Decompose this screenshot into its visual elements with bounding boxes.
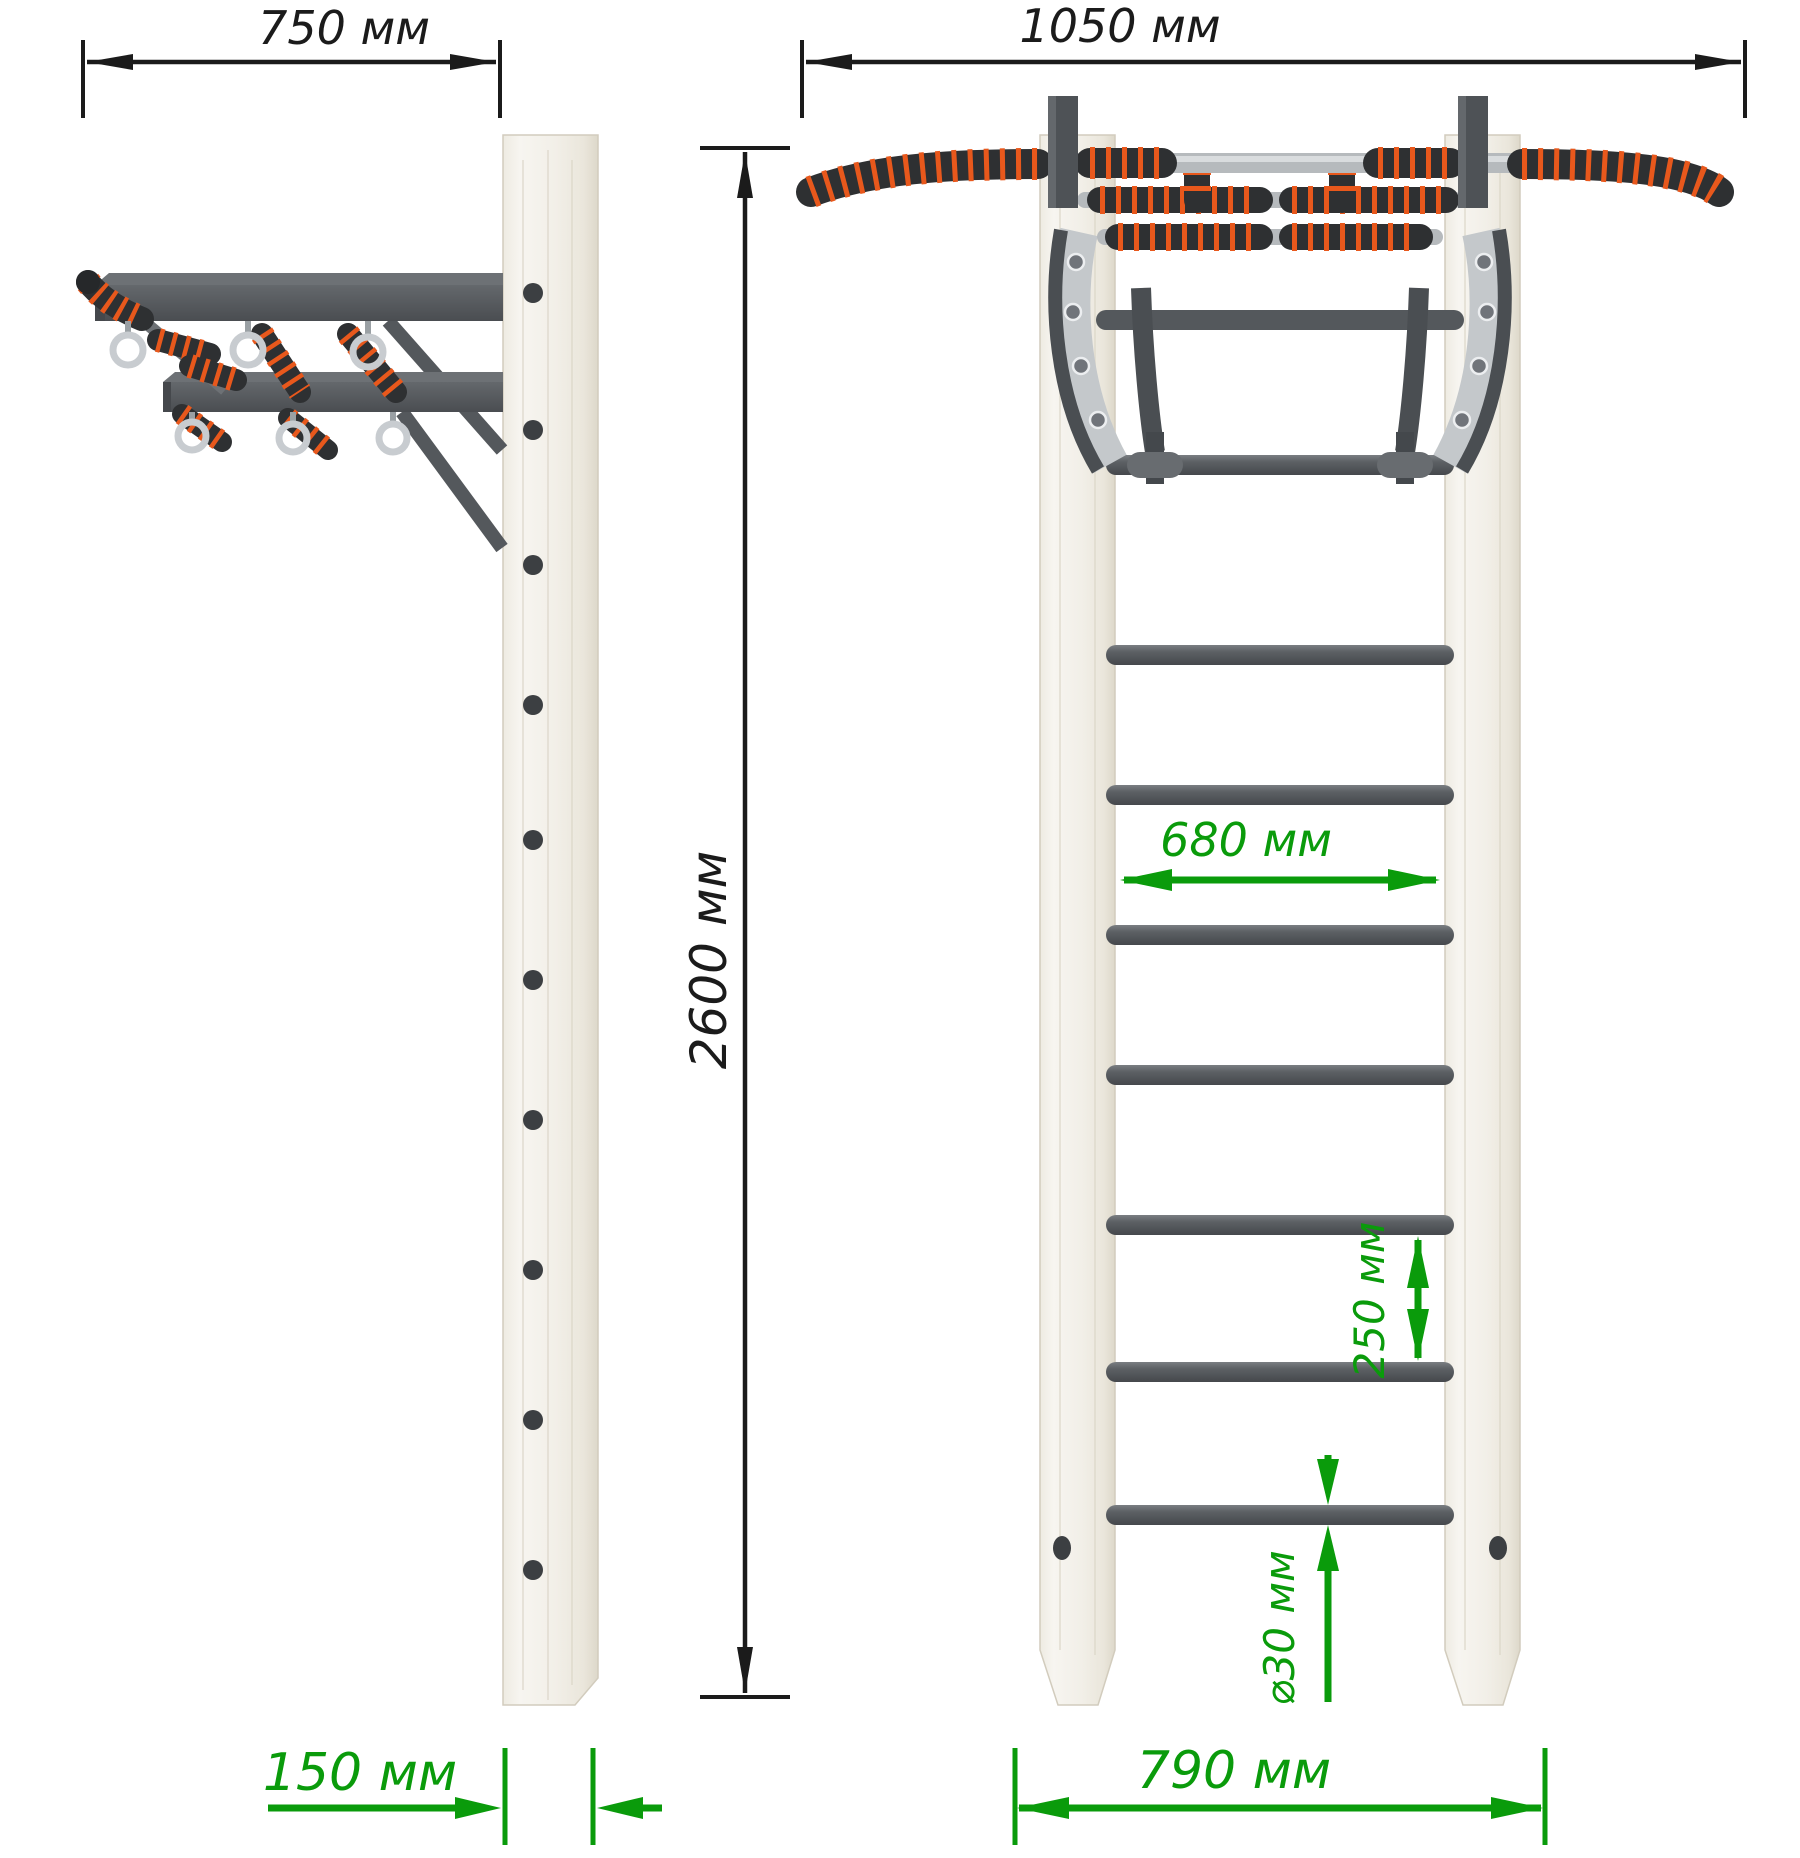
plate-hole [1090,412,1106,428]
mounting-bolt [523,695,543,715]
plate-hole [1065,304,1081,320]
pullup-assembly [807,96,1723,484]
arrowhead [806,54,852,70]
dimension-label: 750 мм [258,1,430,55]
side-view [76,135,598,1705]
dimension-post-depth: 150 мм [263,1743,662,1845]
dimension-rung-diameter: ⌀30 мм [1255,1455,1339,1706]
mounting-bolt [523,1410,543,1430]
plate-hole [1479,304,1495,320]
arrowhead [1017,1797,1069,1819]
mounting-bolt [523,830,543,850]
mounting-bolt [523,1560,543,1580]
ladder-rungs [1106,455,1454,1525]
plate-hole [1454,412,1470,428]
mounting-bolt [523,970,543,990]
arrowhead [597,1797,643,1819]
eye-ring [379,424,407,452]
dimension-label: 150 мм [263,1743,457,1803]
arrowhead [1407,1309,1429,1361]
rung-coupler [1127,452,1183,478]
ladder-rung [1106,1362,1454,1382]
arrowhead [1317,1525,1339,1571]
dimension-inner-width: 680 мм [1120,813,1440,891]
bracket-post-face [1048,96,1056,208]
dimension-label: 680 мм [1160,813,1332,867]
arrowhead [1120,869,1172,891]
ladder-rung [1106,1215,1454,1235]
plate-holes [1065,254,1495,428]
arrowhead [1388,869,1440,891]
mounting-bolt [523,420,543,440]
mounting-bolt [1489,1536,1507,1560]
arrowhead [1695,54,1741,70]
dimension-label: 250 мм [1345,1222,1394,1379]
side-post [503,135,598,1705]
upper-beam [95,273,503,321]
mounting-bolt [523,1260,543,1280]
ladder-rung [1106,925,1454,945]
mounting-bolt [523,1110,543,1130]
mounting-bolt [1053,1536,1071,1560]
bracket-post-face [1458,96,1466,208]
arrowhead [87,54,133,70]
dimension-height-overall: 2600 мм [680,148,790,1697]
ladder-rung [1106,1505,1454,1525]
arrowhead [450,54,496,70]
arrowhead [455,1797,501,1819]
ladder-rung [1106,645,1454,665]
dimension-depth-overall: 750 мм [83,1,500,118]
dimension-label: 790 мм [1137,1741,1331,1801]
ladder-rung [1106,785,1454,805]
dimension-label: 1050 мм [1019,0,1220,53]
dimension-label: 2600 мм [680,851,738,1070]
arrowhead [1407,1236,1429,1288]
dimension-diagram: 750 мм 1050 мм 2600 мм 680 мм 250 мм ⌀30… [0,0,1800,1858]
plate-hole [1073,358,1089,374]
eye-ring [233,335,263,365]
rung-coupler [1377,452,1433,478]
plate-hole [1068,254,1084,270]
arrowhead [737,152,753,198]
dimension-rung-spacing: 250 мм [1345,1222,1429,1379]
arrowhead [737,1647,753,1693]
arrowhead [1491,1797,1543,1819]
handle-end-cap [76,270,100,294]
ladder-rung [1106,1065,1454,1085]
plate-hole [1476,254,1492,270]
eye-ring [113,335,143,365]
dimension-width-overall: 1050 мм [802,0,1745,118]
plate-hole [1471,358,1487,374]
front-view [807,96,1723,1705]
dimension-ladder-width: 790 мм [1015,1741,1545,1845]
mounting-bolt [523,283,543,303]
dimension-label: ⌀30 мм [1255,1550,1304,1705]
arrowhead [1317,1459,1339,1505]
mounting-bolt [523,555,543,575]
